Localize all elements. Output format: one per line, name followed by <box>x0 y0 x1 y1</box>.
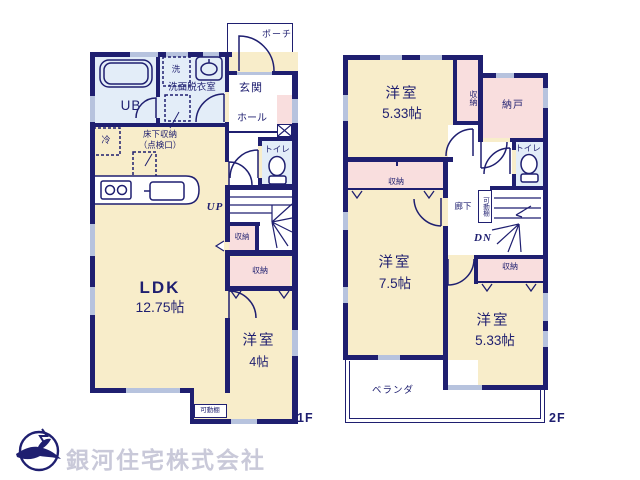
company-logo <box>13 423 65 477</box>
wall <box>343 55 483 60</box>
window-marker <box>543 293 548 321</box>
window-marker <box>130 52 158 57</box>
entrance-label: 玄関 <box>232 82 270 95</box>
closet-front-line <box>478 281 543 283</box>
wall <box>227 71 237 75</box>
toilet-label-1f: トイレ <box>261 145 293 155</box>
movable-shelf-label-2f: 可動棚 <box>481 192 488 222</box>
storeroom-label: 納戸 <box>496 100 530 112</box>
underfloor-hatch-label: （点検口） <box>136 141 184 151</box>
wall <box>225 250 295 256</box>
window-marker <box>343 212 348 230</box>
wall <box>512 174 516 186</box>
wall <box>225 252 230 290</box>
fridge-label: 冷 <box>99 135 113 145</box>
shoe-cabinet <box>277 95 292 124</box>
closet-front-line <box>348 188 443 190</box>
window-marker <box>90 224 95 256</box>
underfloor-storage-label: 床下収納 <box>139 130 181 140</box>
window-marker <box>166 52 188 57</box>
floor1-label: 1F <box>297 411 321 425</box>
wall <box>255 222 259 254</box>
wall <box>443 157 448 198</box>
wall <box>474 255 478 284</box>
window-marker <box>292 330 298 356</box>
wall <box>225 185 298 190</box>
unit-bath-label: UB <box>112 98 150 114</box>
closet-divider-tick <box>396 158 398 166</box>
ldk-size-label: 12.75帖 <box>124 299 196 315</box>
wall <box>225 286 295 291</box>
ldk-name-label: LDK <box>133 278 187 298</box>
porch-label: ポーチ <box>250 29 292 39</box>
window-marker <box>543 88 548 108</box>
window-marker <box>378 355 400 360</box>
bedroom-west-name-label: 洋室 <box>372 255 418 272</box>
wall <box>478 55 483 142</box>
wall <box>453 121 478 125</box>
entrance-threshold <box>237 72 272 75</box>
washroom-label: 洗面脱衣室 <box>160 83 224 94</box>
bedroom-name-label-1f: 洋室 <box>236 333 282 350</box>
wall <box>474 255 548 259</box>
hallway-label: 廊下 <box>448 202 478 212</box>
window-marker <box>448 385 482 390</box>
bedroom-east-name-label: 洋室 <box>470 313 516 330</box>
bedroom-north-name-label: 洋室 <box>381 86 423 103</box>
hallway-mid <box>448 142 512 186</box>
bedroom-east-closet-label: 収納 <box>494 262 526 271</box>
window-marker <box>380 55 402 60</box>
movable-shelf-box-1f: 可動棚 <box>194 404 227 418</box>
movable-shelf-label-1f: 可動棚 <box>195 407 225 414</box>
window-marker <box>343 287 348 303</box>
wall <box>90 123 229 127</box>
wall <box>292 71 298 424</box>
room-hall <box>229 137 258 185</box>
entrance-step-line <box>229 131 277 133</box>
stairs-up-label: UP <box>202 201 228 214</box>
wall <box>490 186 548 190</box>
bedroom-east-size-label: 5.33帖 <box>464 333 526 349</box>
bedroom-north-size-label: 5.33帖 <box>371 106 433 122</box>
wall <box>478 138 482 142</box>
toilet-label-2f: トイレ <box>512 144 544 154</box>
movable-shelf-box-2f: 可動棚 <box>478 190 492 223</box>
wall <box>258 137 292 141</box>
bedroom-size-label-1f: 4帖 <box>243 355 275 369</box>
wall <box>443 255 448 259</box>
bedroom-west-size-label: 7.5帖 <box>371 276 419 292</box>
bedroom-west-closet-label: 収納 <box>380 177 412 186</box>
stairwell-2f <box>490 190 543 255</box>
wall <box>272 71 293 75</box>
window-marker <box>420 55 442 60</box>
floor2-label: 2F <box>549 411 575 425</box>
washer-label: 洗 <box>169 65 183 75</box>
stairs-down-label: DN <box>470 232 496 245</box>
company-name: 銀河住宅株式会社 <box>66 441 266 475</box>
window-marker <box>496 73 514 78</box>
window-marker <box>543 331 548 347</box>
window-marker <box>90 287 95 315</box>
window-marker <box>231 419 257 424</box>
stair-closet-label: 収納 <box>230 233 254 242</box>
window-marker <box>292 99 298 123</box>
floorplan-canvas: 可動棚 可動棚 <box>0 0 640 480</box>
window-marker <box>343 95 348 121</box>
wall <box>343 157 453 162</box>
closet-north-label: 収納 <box>457 75 478 121</box>
wall <box>443 226 448 390</box>
bird-in-circle-icon <box>16 429 61 470</box>
tall-cabinet-box <box>277 124 292 137</box>
bedroom-closet-label-1f: 収納 <box>244 266 276 275</box>
hall-label: ホール <box>230 113 274 125</box>
window-marker <box>203 52 219 57</box>
veranda-label: ベランダ <box>360 386 426 397</box>
window-marker <box>126 388 180 393</box>
wall <box>225 318 230 393</box>
wall <box>225 122 229 162</box>
window-marker <box>90 96 95 122</box>
